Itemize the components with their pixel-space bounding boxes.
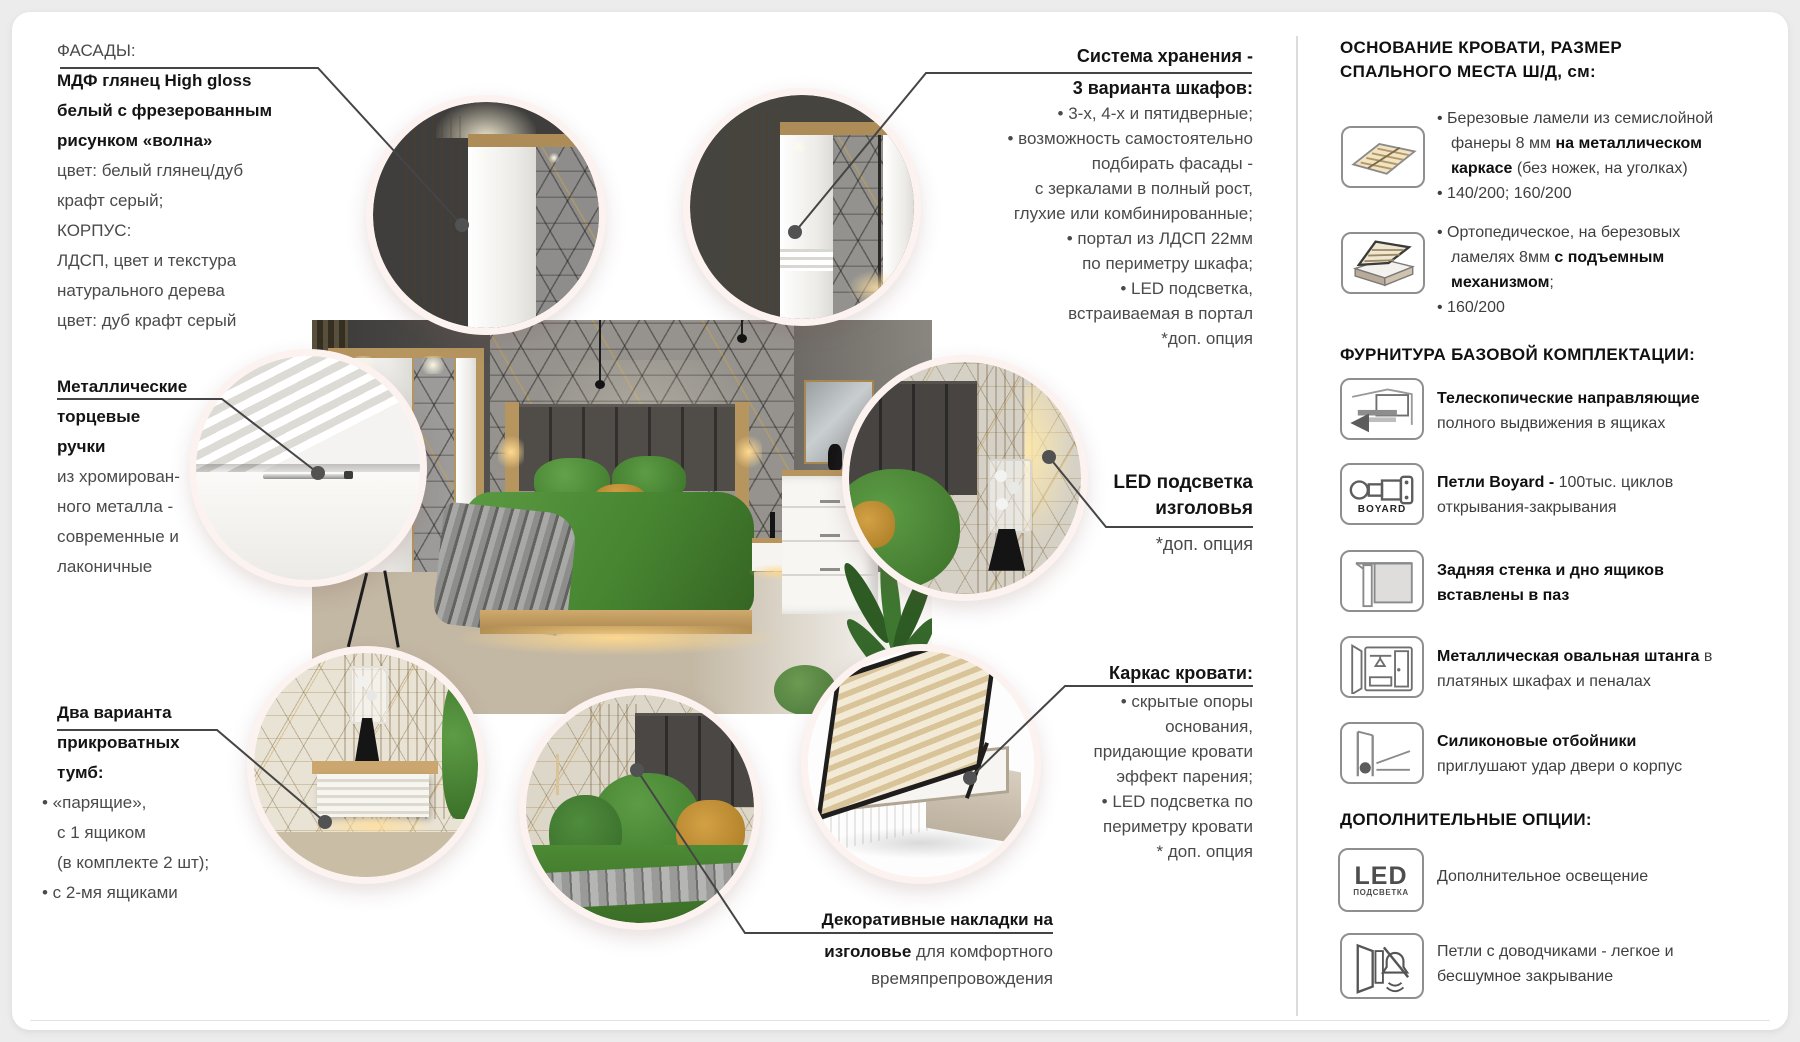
led-icon-big-text: LED [1355, 864, 1408, 888]
drawer-slide-icon [1340, 378, 1424, 440]
soft-close-hinge-icon [1340, 933, 1424, 999]
pendant-lamp [599, 320, 601, 382]
options-header: ДОПОЛНИТЕЛЬНЫЕ ОПЦИИ: [1340, 808, 1592, 832]
boyard-label: BOYARD [1358, 505, 1406, 515]
decor-pads-note: Декоративные накладки наизголовье для ко… [745, 906, 1053, 992]
bed-base-item-2: • Ортопедическое, на березовыхламелях 8м… [1437, 220, 1773, 320]
led-headboard-note: LED подсветкаизголовья*доп. опция [1000, 470, 1253, 557]
floating-nightstand [312, 761, 437, 774]
led-light-icon: LED ПОДСВЕТКА [1338, 848, 1424, 912]
wardrobe-rail-icon [1340, 636, 1424, 698]
bed-led-glow [452, 626, 782, 656]
sconce-glow-right [736, 432, 762, 472]
hardware-item-5: Силиконовые отбойникиприглушают удар две… [1437, 729, 1773, 779]
slat-base-icon [1341, 126, 1425, 188]
candle [556, 754, 559, 795]
groove-panel-icon [1340, 550, 1424, 612]
callout-wardrobe-closeup-2 [683, 88, 921, 326]
lift-bed-icon [1341, 232, 1425, 294]
bottom-divider [30, 1020, 1770, 1021]
options-item-1: Дополнительное освещение [1437, 864, 1773, 889]
storage-system-note: Система хранения -3 варианта шкафов:• 3-… [930, 44, 1253, 351]
callout-headboard-pillows [519, 688, 761, 930]
bed-base-item-1: • Березовые ламели из семислойнойфанеры … [1437, 106, 1773, 206]
dresser-decor-vase [828, 444, 842, 470]
bed-base-header: ОСНОВАНИЕ КРОВАТИ, РАЗМЕРСПАЛЬНОГО МЕСТА… [1340, 36, 1622, 84]
specs-column: ОСНОВАНИЕ КРОВАТИ, РАЗМЕРСПАЛЬНОГО МЕСТА… [1340, 36, 1772, 1016]
led-icon-small-text: ПОДСВЕТКА [1353, 888, 1408, 897]
hinge-boyard-icon: BOYARD [1340, 463, 1424, 525]
nightstands-note: Два вариантаприкроватныхтумб:• «парящие»… [42, 698, 292, 908]
pendant-lamp-head [595, 380, 605, 389]
hardware-header: ФУРНИТУРА БАЗОВОЙ КОМПЛЕКТАЦИИ: [1340, 343, 1695, 367]
glass-vase-lights [350, 666, 388, 724]
pendant-lamp-2-head [737, 334, 747, 343]
sconce-glow-left [498, 432, 524, 472]
infographic-canvas: ФАСАДЫ:МДФ глянец High glossбелый с фрез… [0, 0, 1800, 1042]
hardware-item-2: Петли Boyard - 100тыс. цикловоткрывания-… [1437, 470, 1773, 520]
facades-note: ФАСАДЫ:МДФ глянец High glossбелый с фрез… [57, 36, 337, 336]
bed-frame-note: Каркас кровати:• скрытые опорыоснования,… [1000, 661, 1253, 864]
hardware-item-1: Телескопические направляющиеполного выдв… [1437, 386, 1773, 436]
metal-handles-note: Металлическиеторцевыеручкииз хромирован-… [57, 372, 297, 582]
hardware-item-4: Металлическая овальная штанга вплатяных … [1437, 644, 1773, 694]
hardware-item-3: Задняя стенка и дно ящиковвставлены в па… [1437, 558, 1773, 608]
options-item-2: Петли с доводчиками - легкое ибесшумное … [1437, 939, 1773, 989]
table-lamp [770, 512, 775, 538]
vertical-divider [1296, 36, 1298, 1016]
callout-wardrobe-closeup-1 [366, 95, 606, 335]
silicone-bumper-icon [1340, 722, 1424, 784]
